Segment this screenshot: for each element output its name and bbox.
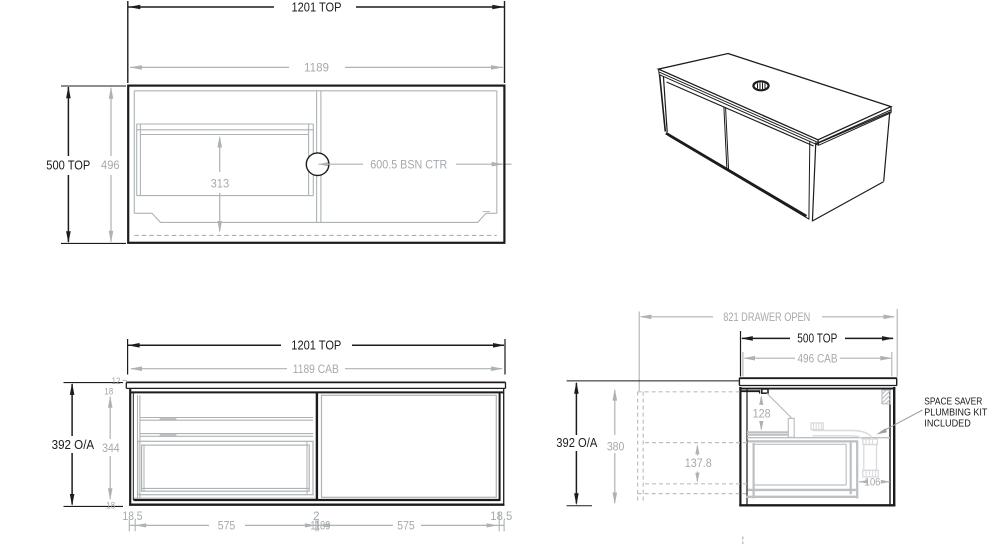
svg-text:821 DRAWER OPEN: 821 DRAWER OPEN bbox=[723, 310, 810, 324]
svg-text:496: 496 bbox=[101, 158, 120, 172]
svg-text:1189 CAB: 1189 CAB bbox=[293, 362, 339, 376]
svg-text:392 O/A: 392 O/A bbox=[556, 436, 598, 450]
svg-text:12: 12 bbox=[112, 376, 121, 387]
svg-text:1201 TOP: 1201 TOP bbox=[292, 0, 342, 14]
svg-text:344: 344 bbox=[102, 441, 120, 455]
svg-text:500 TOP: 500 TOP bbox=[797, 332, 837, 346]
svg-text:PLUMBING KIT: PLUMBING KIT bbox=[924, 408, 987, 419]
svg-text:SPACE SAVER: SPACE SAVER bbox=[924, 396, 982, 407]
svg-text:496 CAB: 496 CAB bbox=[798, 351, 838, 365]
svg-text:18.5: 18.5 bbox=[123, 510, 143, 523]
svg-text:1189: 1189 bbox=[304, 61, 329, 75]
svg-text:392 O/A: 392 O/A bbox=[52, 438, 95, 452]
svg-text:18.5: 18.5 bbox=[490, 510, 512, 523]
svg-text:1201 TOP: 1201 TOP bbox=[291, 339, 341, 353]
svg-text:137.8: 137.8 bbox=[685, 456, 712, 470]
svg-text:18: 18 bbox=[106, 501, 115, 512]
svg-text:575: 575 bbox=[218, 519, 236, 533]
svg-text:575: 575 bbox=[397, 519, 415, 533]
svg-text:313: 313 bbox=[211, 177, 230, 191]
svg-text:18: 18 bbox=[104, 387, 113, 398]
svg-text:380: 380 bbox=[607, 439, 625, 453]
svg-text:128: 128 bbox=[753, 406, 771, 420]
svg-text:INCLUDED: INCLUDED bbox=[924, 419, 971, 430]
svg-text:500 TOP: 500 TOP bbox=[46, 159, 90, 173]
svg-text:600.5 BSN CTR: 600.5 BSN CTR bbox=[370, 157, 447, 171]
svg-text:1189: 1189 bbox=[310, 519, 330, 533]
svg-text:106: 106 bbox=[865, 477, 881, 489]
